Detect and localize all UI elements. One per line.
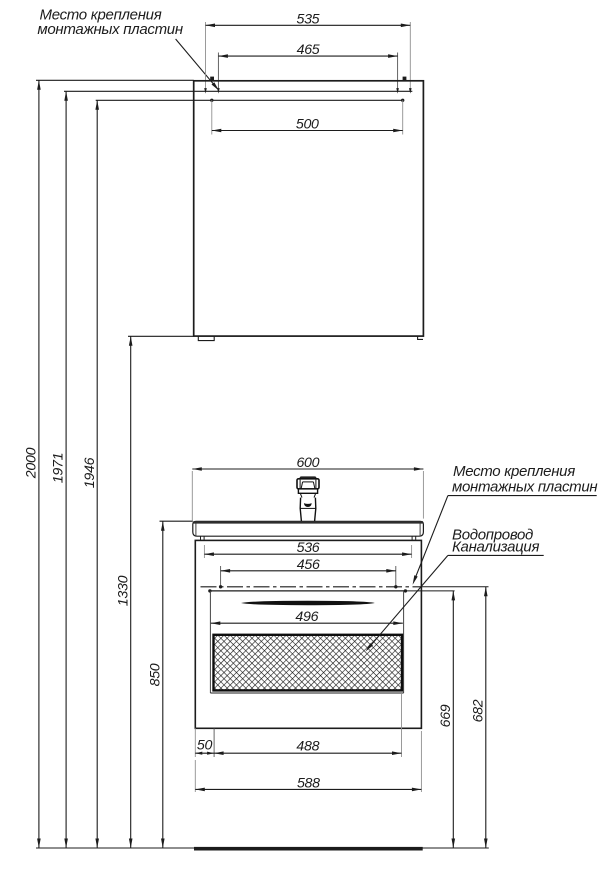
svg-text:669: 669 bbox=[438, 704, 454, 727]
svg-text:1971: 1971 bbox=[51, 453, 67, 483]
svg-text:488: 488 bbox=[296, 739, 319, 755]
svg-text:монтажных пластин: монтажных пластин bbox=[37, 21, 182, 38]
svg-text:Канализация: Канализация bbox=[452, 539, 539, 556]
svg-text:1330: 1330 bbox=[115, 575, 131, 606]
svg-text:682: 682 bbox=[470, 699, 486, 722]
svg-text:50: 50 bbox=[197, 738, 213, 754]
svg-text:600: 600 bbox=[296, 455, 319, 471]
svg-text:2000: 2000 bbox=[24, 447, 40, 479]
svg-text:456: 456 bbox=[297, 557, 320, 573]
svg-text:465: 465 bbox=[297, 42, 320, 58]
svg-text:536: 536 bbox=[297, 540, 320, 556]
svg-text:850: 850 bbox=[147, 663, 163, 686]
svg-text:500: 500 bbox=[296, 117, 319, 133]
svg-text:535: 535 bbox=[297, 11, 320, 27]
svg-text:монтажных пластин: монтажных пластин bbox=[452, 479, 597, 496]
svg-text:588: 588 bbox=[297, 775, 320, 791]
svg-text:496: 496 bbox=[295, 609, 318, 625]
svg-text:1946: 1946 bbox=[82, 457, 98, 488]
